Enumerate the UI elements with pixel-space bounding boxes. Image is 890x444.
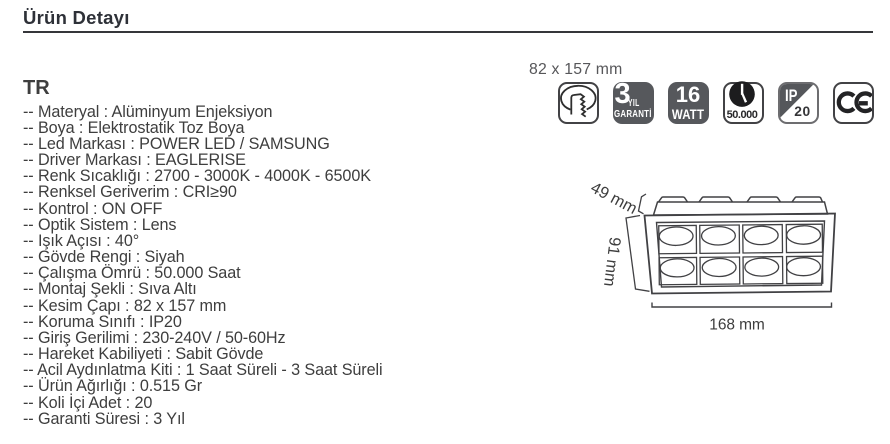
- svg-text:91 mm: 91 mm: [600, 236, 624, 288]
- svg-text:49 mm: 49 mm: [588, 179, 640, 218]
- svg-text:168 mm: 168 mm: [709, 317, 764, 334]
